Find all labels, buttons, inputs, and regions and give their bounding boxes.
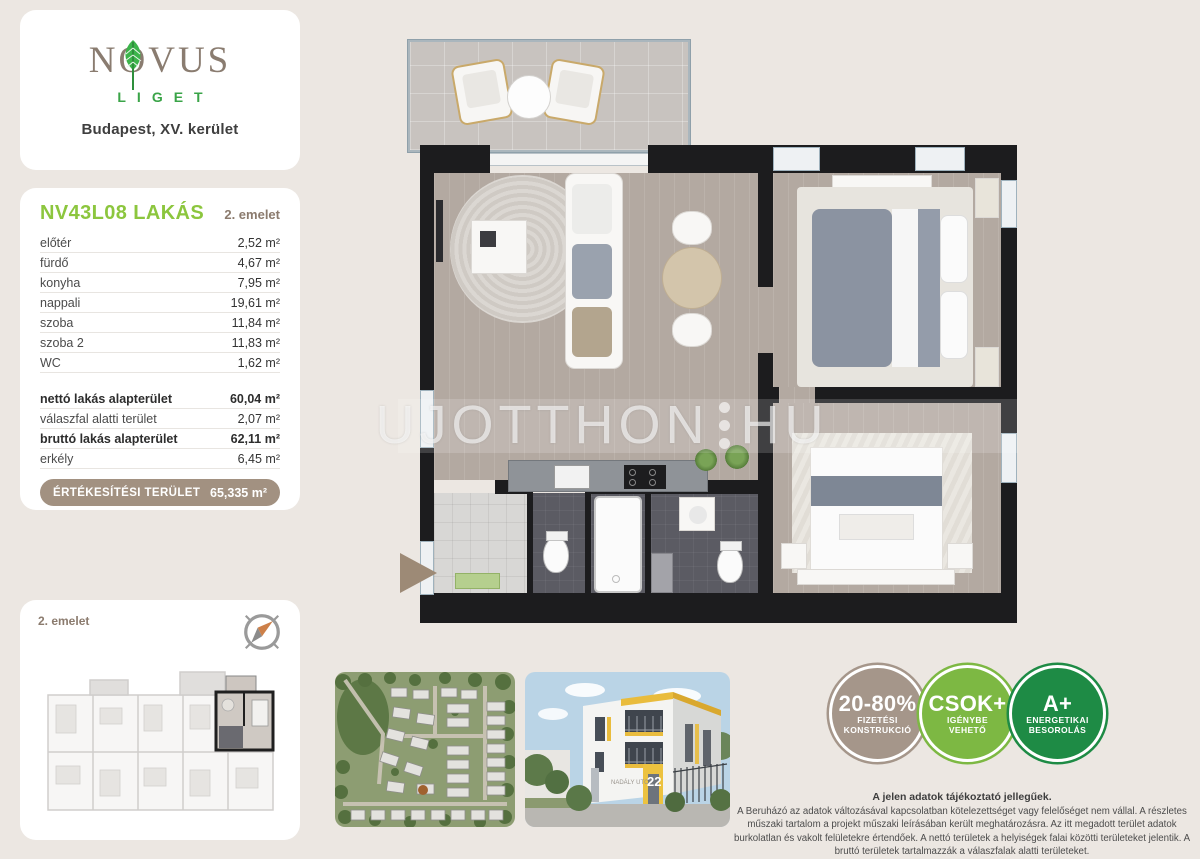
disclaimer-title: A jelen adatok tájékoztató jellegűek. <box>732 791 1192 803</box>
leaf-icon <box>120 38 146 96</box>
dining-table <box>662 247 722 309</box>
room-row: szoba11,84 m² <box>40 313 280 333</box>
wall <box>585 480 591 595</box>
watermark-dots <box>717 402 732 449</box>
summary-row-partition: válaszfal alatti terület2,07 m² <box>40 409 280 429</box>
wall <box>758 173 773 593</box>
logo-card: NO NOVUSVUS LIGET Budapest, XV. kerület <box>20 10 300 170</box>
toilet <box>543 537 569 573</box>
nightstand <box>781 543 807 569</box>
aerial-photo <box>335 672 515 827</box>
badge-payment: 20-80% FIZETÉSI KONSTRUKCIÓ <box>829 665 926 762</box>
toilet <box>717 547 743 583</box>
brand-logo: NO NOVUSVUS <box>20 42 300 79</box>
unit-title: NV43L08 LAKÁS <box>40 202 204 225</box>
balcony-armchair <box>450 58 514 126</box>
washing-machine <box>651 553 673 593</box>
cooktop <box>624 465 666 489</box>
sofa <box>565 173 623 369</box>
bedroom2-bed <box>810 447 943 577</box>
dining-chair <box>672 211 712 245</box>
unit-floor: 2. emelet <box>224 207 280 222</box>
balcony-upper <box>625 710 663 736</box>
window <box>915 147 965 171</box>
wall <box>527 480 533 595</box>
floor-overview-card: 2. emelet <box>20 600 300 840</box>
doormat <box>455 573 500 589</box>
balcony-door <box>490 153 648 166</box>
nightstand <box>975 178 999 218</box>
watermark: UJOTTHON HU <box>372 392 832 458</box>
door-opening <box>758 287 773 353</box>
window <box>1001 180 1017 228</box>
badge-csok: CSOK+ IGÉNYBE VEHETŐ <box>919 665 1016 762</box>
dining-chair <box>672 313 712 347</box>
room-row: WC1,62 m² <box>40 353 280 373</box>
summary-row-net: nettó lakás alapterület60,04 m² <box>40 389 280 409</box>
room-row: előtér2,52 m² <box>40 233 280 253</box>
tv <box>436 200 443 262</box>
unit-data-card: NV43L08 LAKÁS 2. emelet előtér2,52 m² fü… <box>20 188 300 510</box>
kitchen-sink <box>554 465 590 489</box>
bedroom1-bed <box>797 187 973 387</box>
badge-energy: A+ ENERGETIKAI BESOROLÁS <box>1009 665 1106 762</box>
floor-overview-label: 2. emelet <box>38 614 89 628</box>
bedroom2-footboard <box>797 569 955 585</box>
street-number: 22 <box>647 774 661 789</box>
floor-overview-plan <box>30 650 290 832</box>
building-render: NADÁLY UTCA 22 <box>525 672 730 827</box>
kitchen-counter <box>508 460 708 492</box>
brand-subname: LIGET <box>20 89 300 105</box>
balcony <box>408 40 690 152</box>
brand-location: Budapest, XV. kerület <box>20 121 300 138</box>
room-row: konyha7,95 m² <box>40 273 280 293</box>
disclaimer-body: A Beruházó az adatok változásával kapcso… <box>732 805 1192 859</box>
room-row: szoba 211,83 m² <box>40 333 280 353</box>
summary-row-balcony: erkély6,45 m² <box>40 449 280 469</box>
bathroom-sink <box>679 497 715 531</box>
main-floorplan <box>395 35 1020 645</box>
balcony-table <box>507 75 551 119</box>
nightstand <box>975 347 999 387</box>
bathtub <box>594 496 642 593</box>
room-row: fürdő4,67 m² <box>40 253 280 273</box>
sales-area-pill: ÉRTÉKESÍTÉSI TERÜLET 65,335 m² <box>40 479 280 506</box>
balcony-armchair <box>542 58 606 126</box>
wall <box>420 145 490 173</box>
entrance-arrow-icon <box>400 553 437 593</box>
summary-row-gross: bruttó lakás alapterület62,11 m² <box>40 429 280 449</box>
window <box>773 147 820 171</box>
badges: 20-80% FIZETÉSI KONSTRUKCIÓ CSOK+ IGÉNYB… <box>829 665 1106 762</box>
disclaimer: A jelen adatok tájékoztató jellegűek. A … <box>732 791 1192 859</box>
wall <box>420 593 1017 623</box>
room-row: nappali19,61 m² <box>40 293 280 313</box>
nightstand <box>947 543 973 569</box>
coffee-table <box>471 220 527 274</box>
